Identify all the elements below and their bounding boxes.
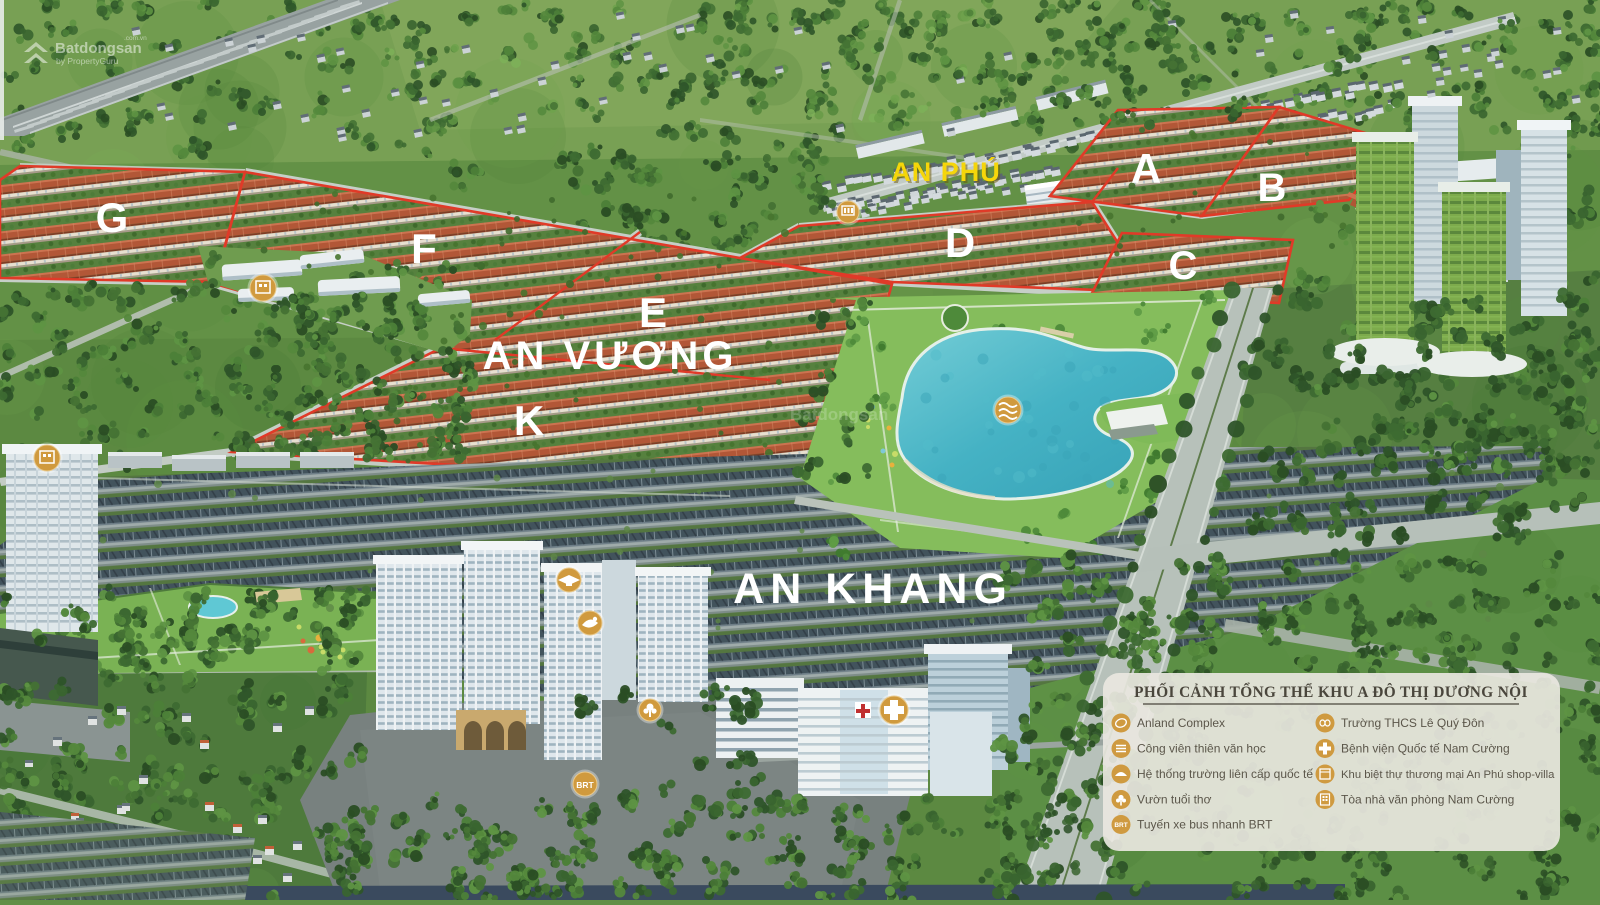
svg-text:Bệnh viện Quốc tế Nam Cường: Bệnh viện Quốc tế Nam Cường — [1341, 742, 1510, 756]
svg-text:Batdongsan: Batdongsan — [55, 40, 142, 57]
svg-text:K: K — [514, 397, 544, 444]
svg-text:PHỐI CẢNH TỔNG THỂ KHU A ĐÔ TH: PHỐI CẢNH TỔNG THỂ KHU A ĐÔ THỊ DƯƠNG NỘ… — [1134, 683, 1528, 701]
svg-text:AN PHÚ: AN PHÚ — [891, 156, 1001, 187]
svg-text:Vườn tuổi thơ: Vườn tuổi thơ — [1137, 793, 1212, 807]
svg-text:AN VƯƠNG: AN VƯƠNG — [483, 334, 738, 378]
svg-text:Hệ thống trường liên cấp quốc: Hệ thống trường liên cấp quốc tế — [1137, 767, 1313, 781]
svg-text:Công viên thiên văn học: Công viên thiên văn học — [1137, 742, 1266, 756]
svg-text:D: D — [945, 219, 975, 266]
svg-text:E: E — [639, 289, 667, 336]
svg-text:C: C — [1169, 244, 1198, 288]
svg-text:Tòa nhà văn phòng Nam Cường: Tòa nhà văn phòng Nam Cường — [1341, 793, 1514, 807]
svg-text:Trường THCS Lê Quý Đôn: Trường THCS Lê Quý Đôn — [1341, 716, 1484, 730]
svg-text:BRT: BRT — [1114, 822, 1127, 829]
svg-text:Anland Complex: Anland Complex — [1137, 716, 1225, 730]
svg-text:AN KHANG: AN KHANG — [733, 565, 1013, 613]
svg-text:F: F — [411, 225, 437, 272]
svg-text:Tuyến xe bus nhanh BRT: Tuyến xe bus nhanh BRT — [1137, 818, 1273, 832]
svg-text:Khu biệt thự thương mại An Phú: Khu biệt thự thương mại An Phú shop-vill… — [1341, 769, 1555, 781]
svg-text:BRT: BRT — [576, 780, 594, 790]
svg-text:A: A — [1131, 145, 1161, 192]
svg-text:B: B — [1258, 166, 1287, 210]
svg-text:Batdongsan: Batdongsan — [790, 405, 888, 424]
svg-text:.com.vn: .com.vn — [124, 35, 147, 42]
svg-text:by PropertyGuru: by PropertyGuru — [56, 56, 119, 66]
svg-text:G: G — [96, 194, 129, 241]
